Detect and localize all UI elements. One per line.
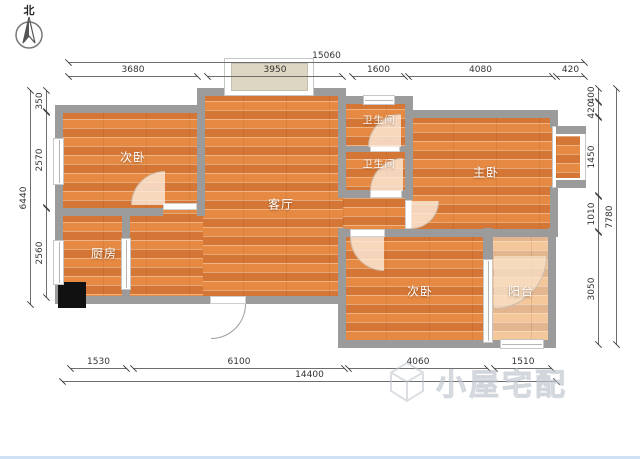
dimension-top-seg-2: 3950 — [207, 76, 343, 77]
dimension-label: 2560 — [35, 242, 45, 265]
wall — [548, 228, 556, 348]
wall — [122, 290, 130, 304]
dimension-bottom-seg-3: 4060 — [348, 368, 488, 369]
dimension-label: 3680 — [122, 65, 145, 75]
wall — [122, 216, 130, 238]
dimension-label: 14400 — [295, 370, 324, 380]
kitchen-sliding-door — [121, 238, 131, 290]
wall — [405, 110, 558, 118]
window — [500, 339, 544, 349]
dimension-label: 2570 — [35, 149, 45, 172]
wall — [246, 296, 346, 304]
wall — [405, 96, 413, 200]
balcony-door-frame — [483, 259, 493, 343]
dimension-right-total: 7780 — [616, 88, 617, 345]
wall — [338, 96, 346, 198]
dimension-label: 420 — [562, 65, 579, 75]
dimension-right-seg-3: 1450 — [598, 117, 599, 196]
room-label-bathroom-lower: 卫生间 — [363, 156, 396, 171]
wall — [385, 229, 490, 237]
room-label-bedroom-upper-left: 次卧 — [120, 149, 146, 166]
dimension-left-total: 6440 — [30, 90, 31, 305]
dimension-label: 15060 — [312, 51, 341, 61]
wall — [338, 229, 350, 237]
north-arrow-icon: 北 — [8, 2, 52, 54]
dimension-label: 1510 — [512, 357, 535, 367]
wall — [338, 228, 346, 348]
door-panel-bedroom-upper-left — [163, 203, 197, 210]
dimension-label: 4060 — [407, 357, 430, 367]
wall — [483, 228, 493, 261]
flue-block — [58, 282, 86, 308]
dimension-right-seg-4: 1010 — [598, 196, 599, 232]
dimension-right-seg-5: 3050 — [598, 232, 599, 345]
dimension-label: 6440 — [19, 186, 29, 209]
door-arc-entry — [211, 304, 246, 339]
dimension-bottom-seg-1: 1530 — [70, 368, 127, 369]
dimension-right-seg-1: 400 — [598, 88, 599, 102]
bay-window-right-cap-top — [556, 126, 586, 134]
north-label: 北 — [24, 3, 35, 17]
door-panel-entry — [210, 296, 246, 304]
room-label-master-bedroom: 主卧 — [473, 164, 499, 181]
room-label-bedroom-lower-right: 次卧 — [407, 283, 433, 300]
dimension-label: 1530 — [87, 357, 110, 367]
floor-plan-canvas: 北 — [0, 0, 640, 459]
dimension-top-seg-1: 3680 — [68, 76, 198, 77]
bay-window-right-floor — [556, 136, 580, 178]
dimension-label: 7780 — [605, 205, 615, 228]
dimension-label: 6100 — [228, 357, 251, 367]
wall — [346, 146, 370, 152]
room-label-living-room: 客厅 — [268, 196, 294, 213]
dimension-label: 4080 — [469, 65, 492, 75]
dimension-left-seg-2: 2570 — [46, 112, 47, 208]
room-label-kitchen: 厨房 — [91, 245, 117, 262]
window — [363, 95, 395, 105]
dimension-bottom-total: 14400 — [62, 381, 557, 382]
dimension-label: 1450 — [587, 145, 597, 168]
door-panel-bedroom-lower-right — [350, 229, 385, 237]
dimension-left-seg-3: 2560 — [46, 208, 47, 298]
dimension-label: 1010 — [587, 203, 597, 226]
dimension-right-seg-2: 420 — [598, 102, 599, 117]
wall — [55, 105, 205, 113]
dimension-top-seg-4: 4080 — [408, 76, 553, 77]
room-label-bathroom-upper: 卫生间 — [363, 112, 396, 127]
dimension-bottom-seg-4: 1510 — [494, 368, 552, 369]
dimension-label: 3050 — [587, 277, 597, 300]
dimension-label: 1600 — [367, 65, 390, 75]
dimension-top-seg-3: 1600 — [352, 76, 405, 77]
wall — [338, 190, 370, 198]
wall — [55, 208, 163, 216]
dimension-top-total: 15060 — [68, 62, 585, 63]
wall — [197, 113, 205, 216]
room-label-balcony: 阳台 — [508, 283, 534, 300]
dimension-left-seg-1: 350 — [46, 90, 47, 112]
bay-window-right-cap-bottom — [556, 180, 586, 188]
dimension-label: 3950 — [264, 65, 287, 75]
window — [53, 138, 64, 185]
door-panel-bathroom-lower — [370, 190, 402, 198]
dimension-top-seg-5: 420 — [556, 76, 585, 77]
dimension-bottom-seg-2: 6100 — [133, 368, 345, 369]
dimension-label: 350 — [35, 92, 45, 109]
window — [53, 240, 64, 285]
